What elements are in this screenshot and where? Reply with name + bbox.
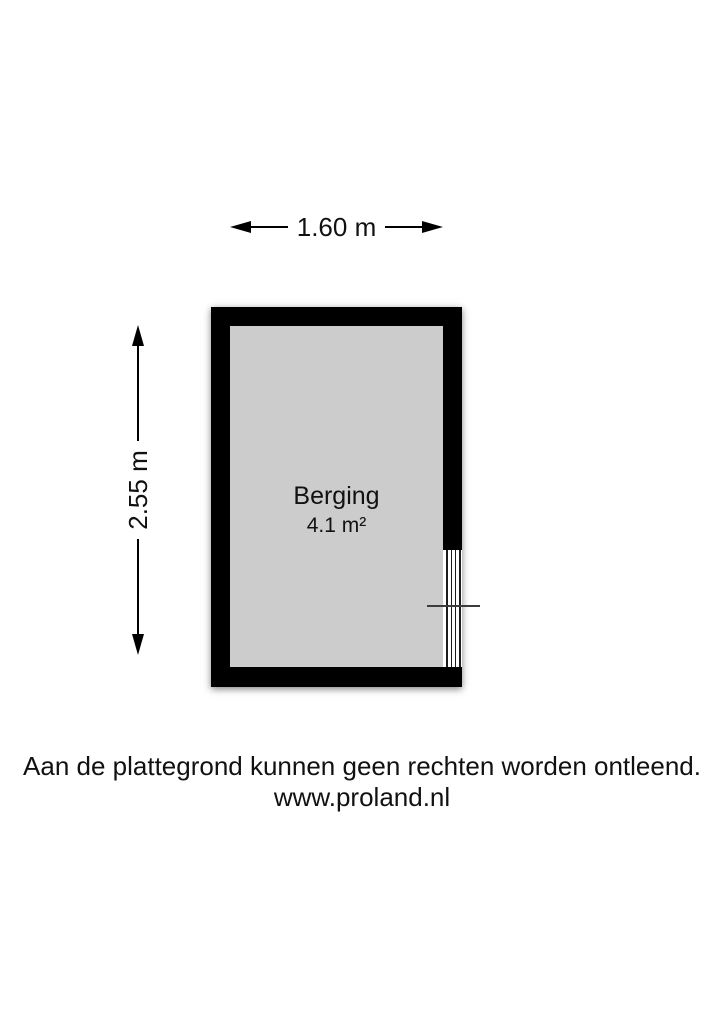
door-hatch-line (455, 550, 457, 667)
dimension-line (137, 539, 139, 634)
door-hatch-line (459, 550, 461, 667)
room-label: Berging 4.1 m² (230, 482, 443, 538)
dimension-width: 1.60 m (230, 214, 443, 240)
footer: Aan de plattegrond kunnen geen rechten w… (0, 751, 724, 813)
door-hatch-line (446, 550, 448, 667)
arrow-left-icon (230, 221, 251, 233)
dimension-width-label: 1.60 m (288, 212, 386, 243)
arrow-up-icon (132, 325, 144, 346)
room-area: 4.1 m² (230, 513, 443, 538)
dimension-height: 2.55 m (125, 325, 151, 655)
arrow-right-icon (422, 221, 443, 233)
website-text: www.proland.nl (0, 782, 724, 813)
dimension-line (385, 226, 422, 228)
door-hatch-line (451, 550, 453, 667)
door-threshold-line (427, 605, 480, 607)
room-name: Berging (230, 482, 443, 511)
dimension-line (251, 226, 288, 228)
door-opening (443, 550, 462, 667)
dimension-line (137, 346, 139, 441)
dimension-height-label: 2.55 m (123, 441, 154, 539)
arrow-down-icon (132, 634, 144, 655)
disclaimer-text: Aan de plattegrond kunnen geen rechten w… (0, 751, 724, 782)
